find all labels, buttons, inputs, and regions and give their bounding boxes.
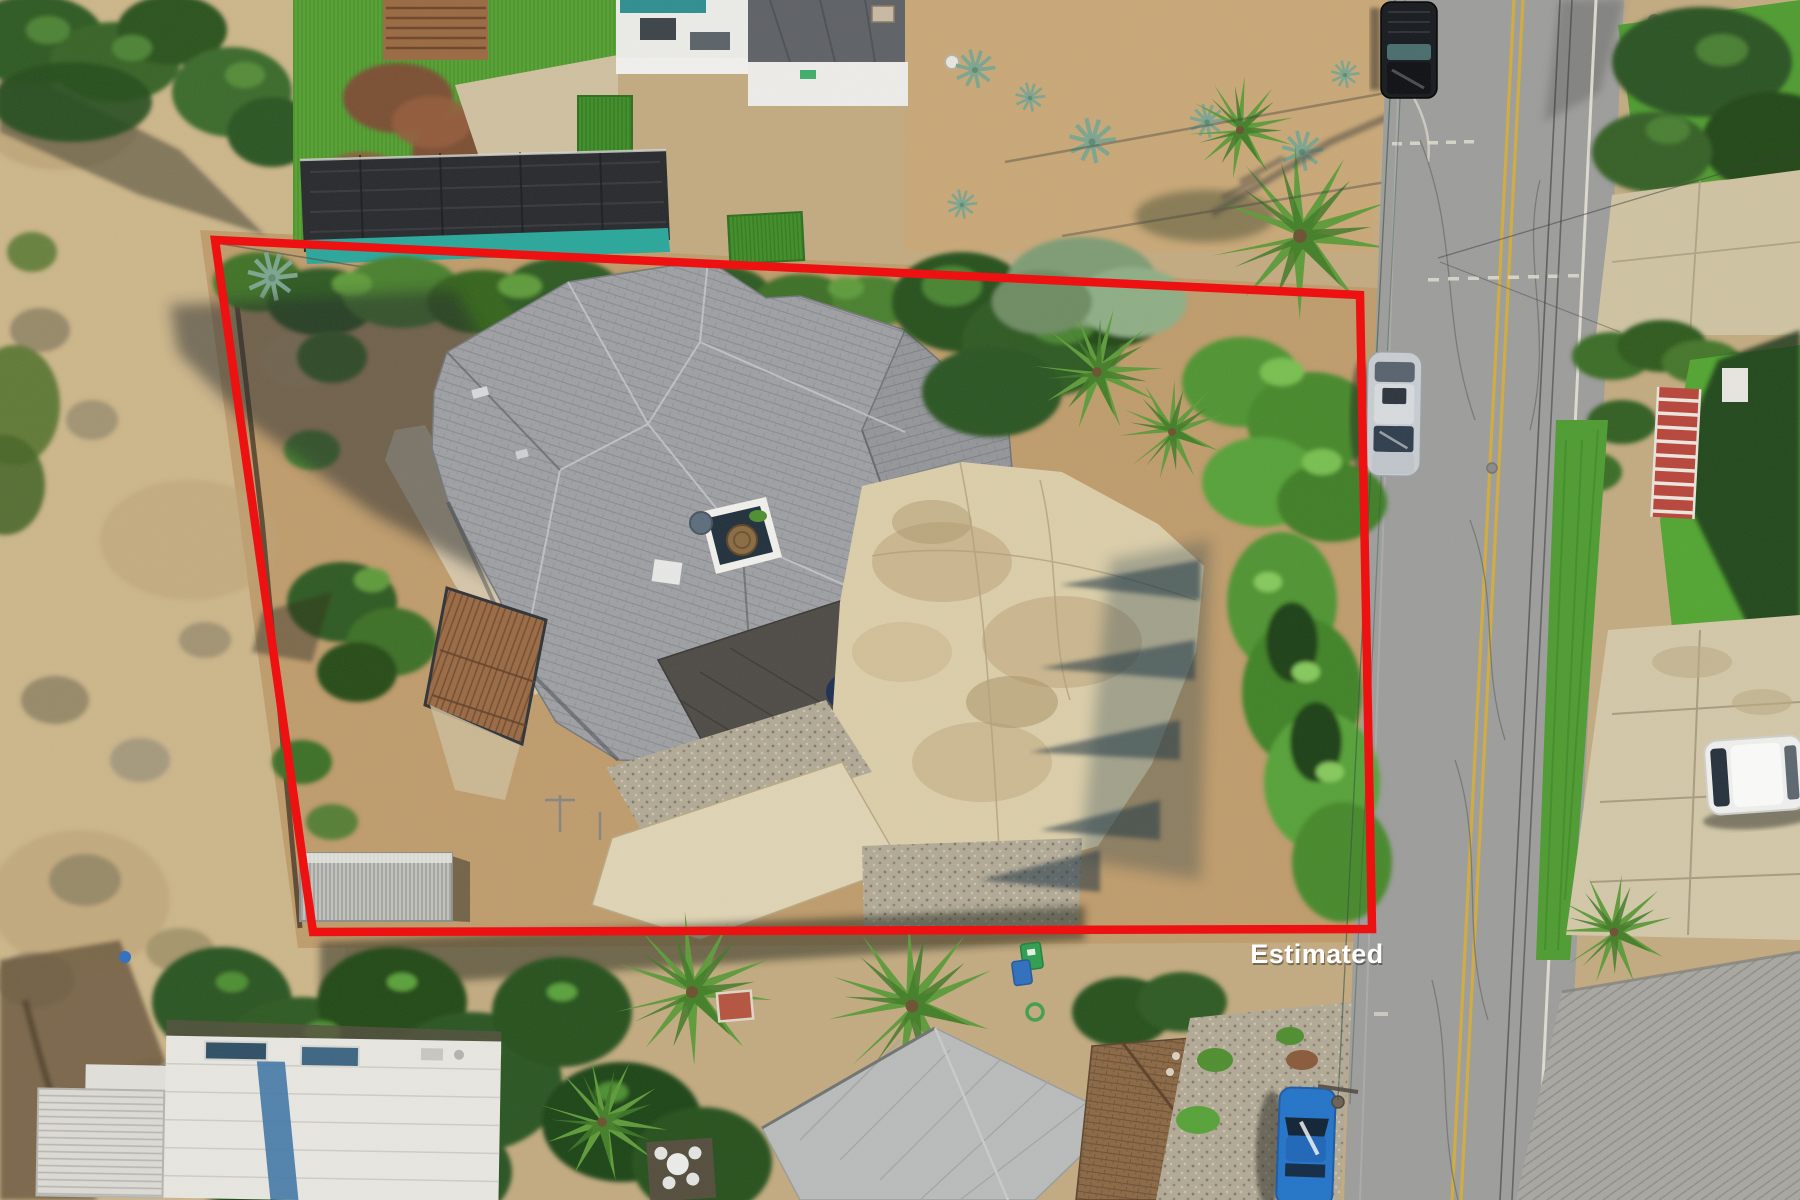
aerial-photo-canvas: Estimated Estimated [0,0,1800,1200]
estimated-label: Estimated [1250,939,1384,969]
aerial-photo: Estimated Estimated [0,0,1800,1200]
